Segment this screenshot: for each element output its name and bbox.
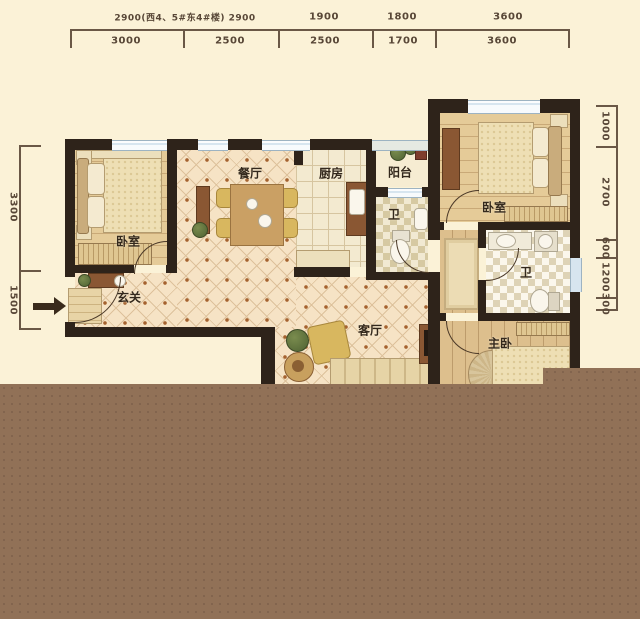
bathroom-sink: [496, 234, 516, 248]
window: [262, 140, 310, 151]
pillow: [532, 158, 549, 188]
room-label-bedroom-left: 卧室: [116, 233, 140, 250]
dim-top2-1: 3000: [111, 36, 141, 47]
room-label-foyer: 玄关: [117, 289, 141, 306]
wall: [167, 149, 177, 273]
wall: [366, 272, 428, 280]
dim-top1-1: 2900(西4、5#东4#楼) 2900: [114, 11, 255, 24]
wall: [478, 280, 486, 313]
dim-top2-3: 2500: [310, 36, 340, 47]
wall: [366, 187, 388, 197]
dim-tick: [19, 145, 41, 147]
wall: [570, 99, 580, 258]
pillow: [532, 127, 549, 157]
room-label-bedroom-right: 卧室: [482, 199, 506, 216]
window: [388, 188, 422, 198]
dim-line-top: [70, 29, 570, 31]
window: [198, 140, 228, 151]
dim-top2-2: 2500: [215, 36, 245, 47]
dim-left-1: 3300: [8, 192, 19, 222]
pillow: [87, 163, 105, 195]
plant-icon: [286, 329, 309, 352]
toilet-tank: [548, 292, 560, 311]
wall: [310, 139, 372, 150]
dim-tick: [435, 29, 437, 48]
entrance-arrow-icon: [33, 303, 55, 310]
wall: [65, 139, 112, 150]
wall: [440, 313, 446, 321]
room-label-balcony: 阳台: [388, 164, 412, 181]
dim-tick: [183, 29, 185, 48]
window: [468, 100, 540, 114]
dresser: [442, 128, 460, 190]
window: [112, 140, 167, 151]
dim-top2-4: 1700: [388, 36, 418, 47]
dining-table: [230, 184, 284, 246]
bed: [103, 158, 162, 233]
dim-left-2: 1500: [8, 285, 19, 315]
dim-top1-4: 3600: [493, 12, 523, 23]
wall: [478, 222, 570, 230]
wall: [294, 149, 303, 165]
wall: [428, 99, 440, 240]
wall: [65, 327, 275, 337]
wall: [428, 222, 444, 230]
room-label-dining: 餐厅: [238, 165, 262, 182]
wall: [428, 272, 440, 390]
dim-tick: [568, 29, 570, 48]
dim-tick: [596, 105, 618, 107]
room-label-living: 客厅: [358, 322, 382, 339]
wardrobe: [516, 322, 570, 336]
washer-door: [538, 234, 553, 249]
wall: [478, 313, 570, 321]
dim-tick: [70, 29, 72, 48]
bottom-block: [0, 384, 640, 619]
dim-right-4: 1200: [600, 262, 611, 292]
dim-line-right: [616, 105, 618, 311]
dim-top1-2: 1900: [309, 12, 339, 23]
dim-right-5: 300: [600, 293, 611, 315]
table-decor: [292, 360, 304, 372]
tableware: [258, 214, 272, 228]
dim-tick: [19, 328, 41, 330]
wall: [294, 267, 350, 277]
dim-right-2: 2700: [600, 177, 611, 207]
wall: [166, 265, 177, 273]
room-label-bath-right: 卫: [520, 264, 532, 281]
bed: [478, 122, 534, 194]
toilet: [530, 289, 550, 313]
room-label-bath-middle: 卫: [388, 206, 400, 223]
entrance-arrow-head-icon: [54, 297, 66, 315]
pillow: [87, 196, 105, 228]
dim-tick: [596, 146, 618, 148]
dim-right-1: 1000: [600, 111, 611, 141]
floorplan-canvas: 2900(西4、5#东4#楼) 2900 1900 1800 3600 3000…: [0, 0, 640, 619]
room-label-master: 主卧: [488, 335, 512, 352]
wall: [228, 139, 262, 150]
hall-rug: [444, 238, 479, 310]
wall: [65, 139, 75, 277]
window: [570, 258, 582, 292]
dim-line-left: [19, 145, 21, 330]
bed-headboard: [548, 126, 562, 196]
wall: [478, 230, 486, 248]
room-label-kitchen: 厨房: [319, 165, 343, 182]
window: [372, 140, 428, 151]
bathroom-sink: [414, 208, 428, 230]
wall: [65, 265, 134, 273]
plant-icon: [192, 222, 208, 238]
wardrobe: [504, 206, 568, 222]
dim-tick: [19, 270, 41, 272]
dim-top2-5: 3600: [487, 36, 517, 47]
wall: [261, 337, 275, 390]
dim-tick: [372, 29, 374, 48]
kitchen-sink: [349, 189, 365, 215]
dim-right-3: 600: [600, 237, 611, 259]
tableware: [246, 198, 258, 210]
dim-tick: [278, 29, 280, 48]
flower-pot: [415, 150, 427, 160]
dim-top1-3: 1800: [387, 12, 417, 23]
wall: [366, 149, 376, 272]
